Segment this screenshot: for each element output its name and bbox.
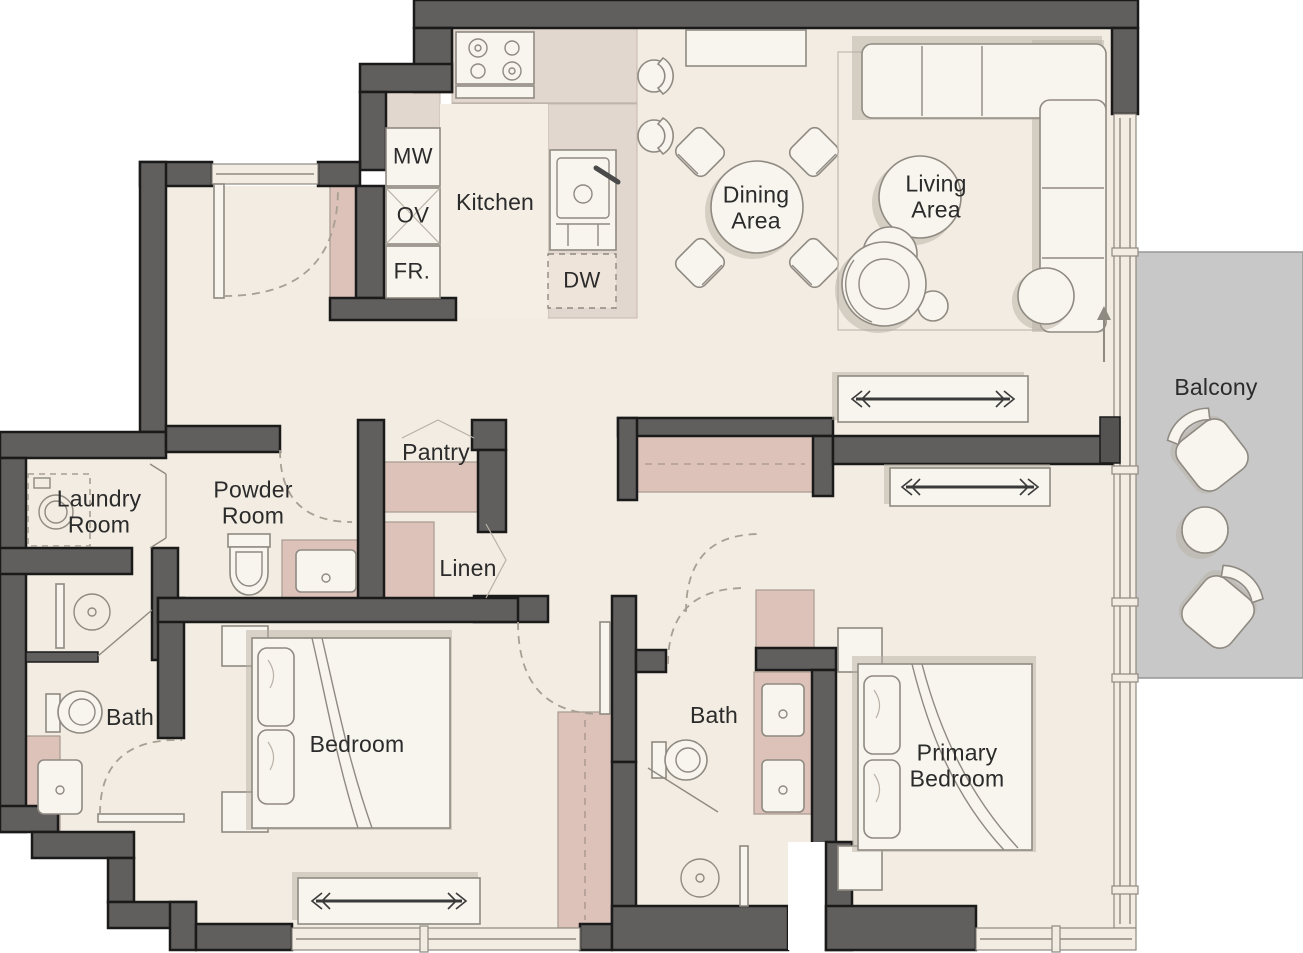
linen-shelf: [384, 522, 434, 600]
entry-cabinet: [330, 186, 356, 298]
sink-icon: [550, 150, 618, 250]
floor-plan: Kitchen MW OV FR. DW Dining Area Living …: [0, 0, 1303, 953]
label-powder-room: Powder Room: [213, 477, 292, 529]
toilet-icon: [228, 534, 270, 595]
label-bath: Bath: [106, 705, 154, 731]
pillow: [258, 730, 294, 804]
label-pantry: Pantry: [402, 440, 470, 466]
vanity-sink: [296, 550, 356, 592]
bath-door-leaf: [98, 814, 184, 822]
label-primary-bath: Bath: [690, 703, 738, 729]
pantry-shelf: [384, 462, 478, 512]
toilet-icon: [46, 691, 102, 733]
label-dining-area: Dining Area: [723, 182, 789, 234]
label-kitchen: Kitchen: [456, 190, 534, 216]
label-oven: OV: [397, 204, 430, 229]
primary-bath-closet: [756, 590, 814, 652]
label-bedroom: Bedroom: [310, 732, 405, 758]
bedroom-furniture: [222, 626, 452, 832]
label-balcony: Balcony: [1174, 375, 1257, 401]
toilet-icon: [652, 740, 707, 780]
label-primary-bedroom: Primary Bedroom: [910, 740, 1005, 792]
pillow: [864, 760, 900, 838]
nightstand: [838, 846, 882, 890]
label-fridge: FR.: [394, 260, 431, 285]
label-laundry-room: Laundry Room: [57, 486, 142, 538]
balcony-door: [1100, 417, 1120, 463]
balcony-table: [1182, 507, 1228, 553]
floor-plan-drawing: [0, 0, 1303, 953]
label-linen: Linen: [439, 556, 496, 582]
label-microwave: MW: [393, 145, 433, 170]
pillow: [864, 676, 900, 754]
vanity-sink: [38, 760, 82, 814]
right-window-band: [1114, 114, 1136, 928]
label-dishwasher: DW: [563, 269, 600, 294]
console-table: [686, 30, 806, 66]
hob-icon: [456, 32, 534, 98]
pillow: [258, 648, 294, 726]
bar-stool: [638, 58, 673, 94]
bar-stool: [638, 118, 673, 154]
label-living-area: Living Area: [905, 171, 966, 223]
side-table: [1018, 268, 1074, 324]
